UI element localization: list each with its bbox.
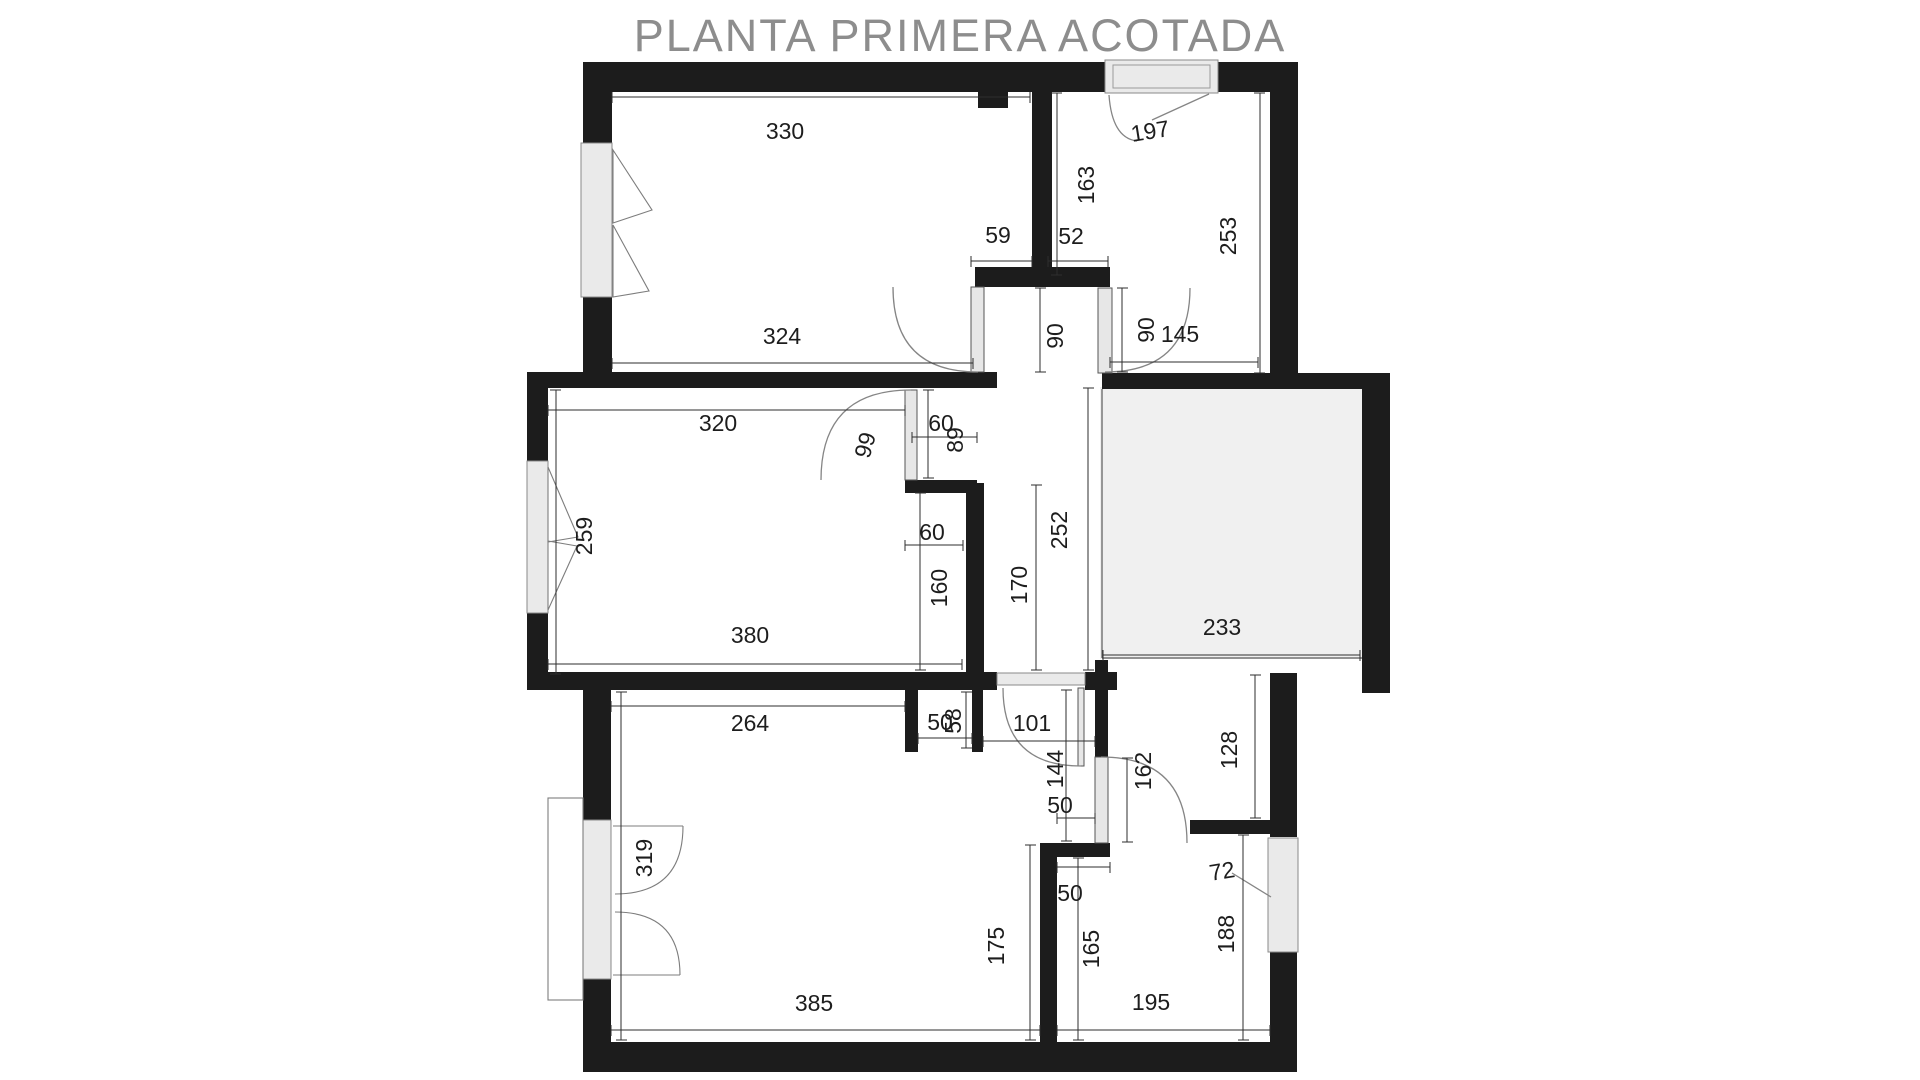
dim-line-188 xyxy=(1238,835,1249,1040)
dim-label: 128 xyxy=(1216,731,1242,769)
wall-segment xyxy=(583,295,612,375)
dim-line-59 xyxy=(971,256,1032,267)
sliding-door-hall xyxy=(997,673,1085,685)
wall-segment xyxy=(1095,660,1108,757)
wall-segment xyxy=(583,690,611,824)
dim-label: 99 xyxy=(849,429,881,460)
dim-label: 252 xyxy=(1046,511,1072,549)
dim-line-195 xyxy=(1057,1025,1270,1036)
dim-line-175 xyxy=(1025,845,1036,1040)
wall-segment xyxy=(527,672,997,690)
dim-label: 197 xyxy=(1129,115,1171,147)
dim-label: 162 xyxy=(1130,752,1156,790)
dim-line-319 xyxy=(616,692,627,1040)
window-bottom-right xyxy=(1268,838,1298,952)
dim-label: 385 xyxy=(795,990,833,1016)
dim-label: 195 xyxy=(1132,989,1170,1015)
dim-label: 50 xyxy=(1057,880,1083,906)
dim-label: 89 xyxy=(942,427,968,453)
wall-segment xyxy=(978,90,1008,108)
dim-label: 253 xyxy=(1215,217,1241,255)
dim-line-259 xyxy=(550,390,561,674)
dim-label: 59 xyxy=(985,222,1011,248)
floorplan-drawing: 330 197 163 253 59 52 324 90 90 145 320 … xyxy=(0,0,1920,1080)
window-middle-room xyxy=(527,461,548,613)
dim-label: 320 xyxy=(699,410,737,436)
wall-segment xyxy=(972,690,983,752)
dim-label: 90 xyxy=(1042,323,1068,349)
dim-label: 101 xyxy=(1013,710,1051,736)
casement-triangle xyxy=(613,150,652,223)
dim-label: 72 xyxy=(1207,856,1236,886)
dim-label: 58 xyxy=(940,708,966,734)
door-arc-living xyxy=(893,287,978,372)
dim-line-385 xyxy=(611,1025,1040,1036)
door-leaf-bedroom xyxy=(1078,688,1084,766)
wall-segment xyxy=(527,372,997,388)
wall-segment xyxy=(975,267,1110,287)
wall-segment xyxy=(1270,673,1297,837)
wall-segment xyxy=(583,92,612,147)
window-bedroom xyxy=(583,820,611,979)
dim-label: 264 xyxy=(731,710,770,736)
dim-label: 319 xyxy=(631,839,657,877)
wall-segment xyxy=(1190,820,1270,834)
leader-72 xyxy=(1232,873,1271,897)
dim-line-330 xyxy=(612,92,1030,103)
dim-label: 145 xyxy=(1161,321,1199,347)
wall-segment xyxy=(1040,843,1110,857)
dim-line-145 xyxy=(1110,357,1258,368)
balcony-outline xyxy=(548,798,583,1000)
wall-segment xyxy=(1362,373,1390,693)
dim-line-90-right xyxy=(1117,288,1128,372)
dim-label: 324 xyxy=(763,323,802,349)
wall-segment xyxy=(966,483,984,690)
dim-label: 259 xyxy=(571,517,597,555)
floorplan-canvas: PLANTA PRIMERA ACOTADA xyxy=(0,0,1920,1080)
dim-label: 233 xyxy=(1203,614,1241,640)
casement-triangle xyxy=(613,225,649,297)
dim-label: 50 xyxy=(1047,792,1073,818)
dim-label: 90 xyxy=(1133,317,1159,343)
french-door-sash xyxy=(613,912,680,975)
dim-label: 188 xyxy=(1213,915,1239,953)
door-leaf-middle xyxy=(905,390,917,480)
plan-title: PLANTA PRIMERA ACOTADA xyxy=(0,10,1920,62)
dim-label: 165 xyxy=(1078,930,1104,968)
dim-line-50c xyxy=(1057,862,1110,873)
wall-segment xyxy=(1032,87,1052,282)
dim-label: 380 xyxy=(731,622,769,648)
dim-label: 170 xyxy=(1006,566,1032,604)
dim-line-170 xyxy=(1031,485,1042,670)
wall-segment xyxy=(583,62,1105,92)
dim-line-253 xyxy=(1254,93,1265,373)
dim-line-128 xyxy=(1250,675,1261,818)
wall-segment xyxy=(527,372,548,465)
wall-segment xyxy=(583,1042,1297,1072)
wall-segment xyxy=(1270,62,1298,375)
wall-segment xyxy=(905,690,918,752)
door-leaf-bath xyxy=(1095,757,1108,843)
dim-label: 163 xyxy=(1073,166,1099,204)
dim-line-252 xyxy=(1083,388,1094,670)
dim-label: 175 xyxy=(983,927,1009,965)
dim-label: 330 xyxy=(766,118,804,144)
door-leaves xyxy=(905,287,1112,843)
window-living-room xyxy=(581,143,612,297)
wall-segment xyxy=(905,480,977,493)
dim-label: 160 xyxy=(926,569,952,607)
dim-label: 52 xyxy=(1058,223,1084,249)
wall-segment xyxy=(1102,373,1390,389)
wall-segment xyxy=(1040,843,1057,1043)
dim-label: 60 xyxy=(919,519,945,545)
wall-segment xyxy=(1270,950,1297,1044)
dim-line-380 xyxy=(548,659,962,670)
dim-label: 144 xyxy=(1042,750,1068,789)
dim-line-324 xyxy=(612,358,973,369)
